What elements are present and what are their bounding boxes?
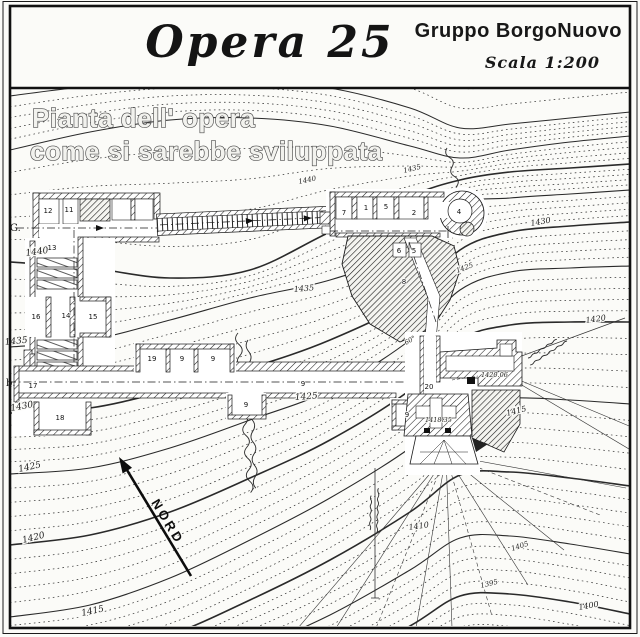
stair-niche bbox=[37, 258, 77, 267]
map-label: 1420.06 bbox=[481, 371, 508, 379]
room-number: 18 bbox=[56, 414, 65, 422]
room-number: 11 bbox=[65, 206, 74, 214]
room-number: 6 bbox=[397, 247, 402, 255]
room-number: 9 bbox=[405, 411, 409, 419]
room-number: 9 bbox=[211, 355, 215, 363]
scale-note: Scala 1:200 bbox=[485, 53, 600, 72]
room-number: 2 bbox=[412, 209, 416, 217]
room-number: 9 bbox=[301, 380, 305, 388]
room-number: 16 bbox=[32, 313, 41, 321]
room-number: 9 bbox=[244, 401, 248, 409]
room-number: 9 bbox=[180, 355, 184, 363]
map-label: 1418.35 bbox=[425, 416, 452, 424]
room-number: 12 bbox=[44, 207, 53, 215]
map-label: 1435 bbox=[293, 283, 314, 294]
scanned-plan-sheet: 1440143514301425142014151440143514301420… bbox=[0, 0, 640, 637]
room-number: 19 bbox=[148, 355, 157, 363]
room-number: 8 bbox=[402, 278, 406, 286]
embrasure-block bbox=[467, 377, 475, 384]
group-name: Gruppo BorgoNuovo bbox=[415, 20, 622, 42]
map-label: 1425 bbox=[295, 391, 319, 403]
room-number: 17 bbox=[29, 382, 38, 390]
room-number: 5 bbox=[384, 203, 388, 211]
room-number: 20 bbox=[425, 383, 434, 391]
room-number: 5 bbox=[412, 247, 416, 255]
room-number: 4 bbox=[457, 208, 462, 216]
room-number: 7 bbox=[342, 209, 346, 217]
sheet-title: Opera 25 bbox=[145, 17, 394, 68]
map-label: G. bbox=[10, 223, 21, 234]
caption-line2: come si sarebbe sviluppata bbox=[30, 136, 383, 166]
map-canvas: 1440143514301425142014151440143514301420… bbox=[0, 0, 640, 637]
caption-line1: Pianta dell' opera bbox=[32, 103, 255, 133]
solid-hatched-block bbox=[80, 199, 110, 221]
room-number: 13 bbox=[48, 244, 57, 252]
room-number: 15 bbox=[89, 313, 98, 321]
room-number: 14 bbox=[62, 312, 71, 320]
blockhouse-northwest bbox=[30, 190, 160, 242]
room-number: 1 bbox=[364, 204, 368, 212]
